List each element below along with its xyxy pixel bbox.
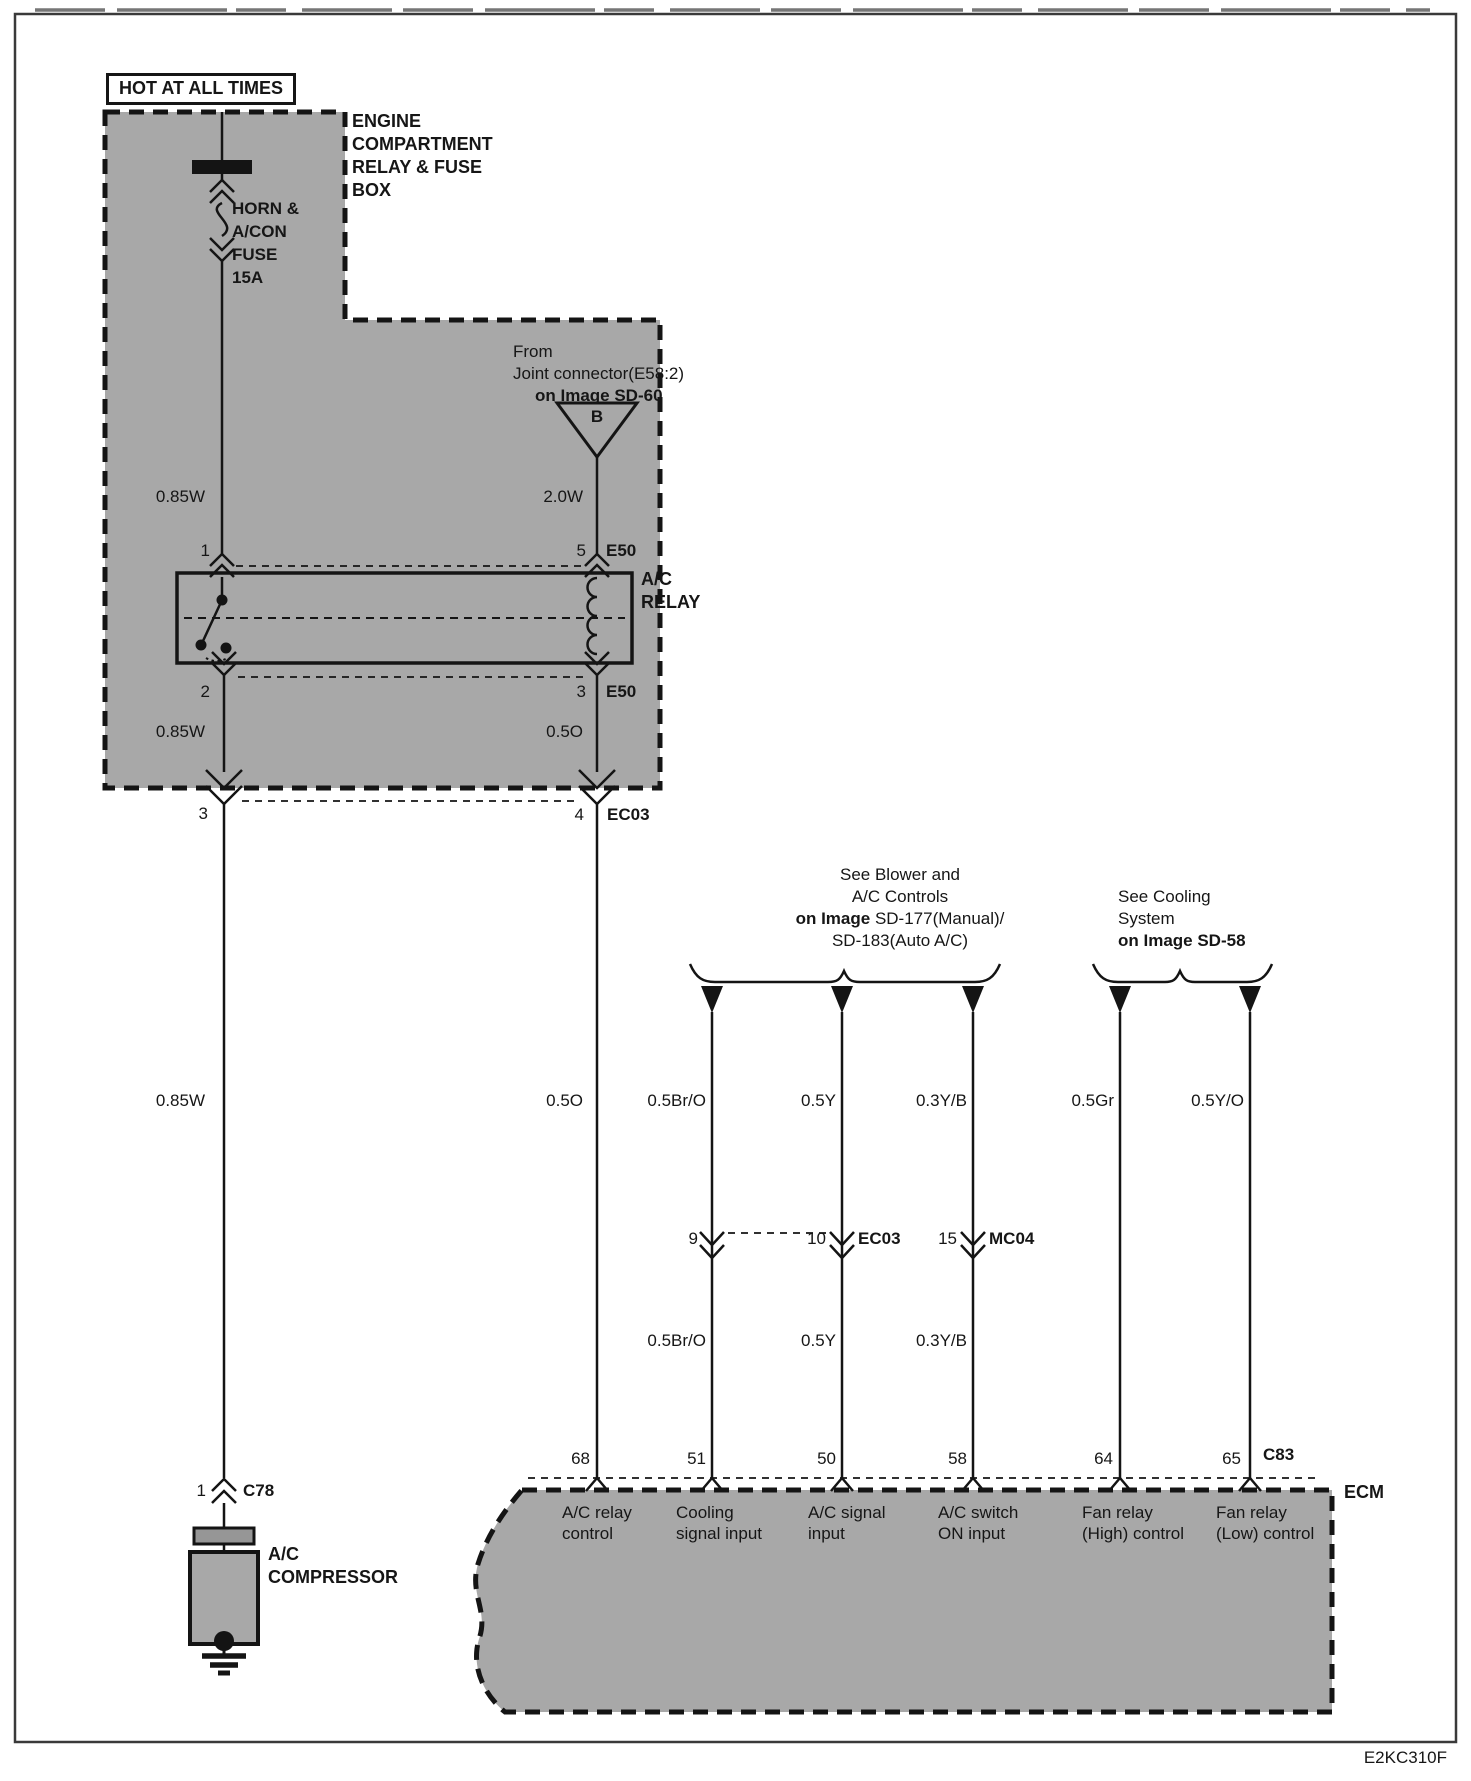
hot-at-all-times-box: HOT AT ALL TIMES: [106, 73, 296, 105]
compressor-connector-icon: [212, 1479, 236, 1503]
relay-pin-number: 1: [170, 540, 210, 561]
ecm-pin-number: 51: [666, 1448, 706, 1469]
ecm-fn-line: (Low) control: [1216, 1523, 1314, 1544]
blower-note-rest: SD-177(Manual)/: [870, 909, 1004, 928]
cooling-brace-icon: [1093, 964, 1272, 982]
ac-signal-arrow-icon: [831, 986, 853, 1013]
wire-label: 0.5O: [503, 721, 583, 742]
joint-triangle-tag: B: [589, 406, 605, 427]
relay-pin-number: 2: [170, 681, 210, 702]
blower-brace-icon: [690, 964, 1000, 982]
ecm-pin-number: 50: [796, 1448, 836, 1469]
relay-pin-number: 5: [546, 540, 586, 561]
relay-pin-number: 3: [546, 681, 586, 702]
ecm-pin-function: Cooling signal input: [676, 1502, 762, 1544]
connector-pin-number: 4: [544, 804, 584, 825]
fuse-box-name: ENGINE COMPARTMENT RELAY & FUSE BOX: [352, 110, 493, 202]
fuse-box-name-line: COMPARTMENT: [352, 133, 493, 156]
ecm-fn-line: (High) control: [1082, 1523, 1184, 1544]
wire-label: 2.0W: [503, 486, 583, 507]
relay-contact-dot: [221, 643, 232, 654]
cooling-note-line: See Cooling: [1118, 886, 1246, 908]
fan-low-arrow-icon: [1239, 986, 1261, 1013]
connector-name: MC04: [989, 1228, 1034, 1249]
fan-high-arrow-icon: [1109, 986, 1131, 1013]
wire-label: 0.85W: [125, 721, 205, 742]
blower-note-line: A/C Controls: [760, 886, 1040, 908]
ecm-fn-line: A/C switch: [938, 1502, 1018, 1523]
fuse-bus-bar: [192, 160, 252, 174]
relay-name-line: RELAY: [641, 591, 700, 614]
relay-name: A/C RELAY: [641, 568, 700, 614]
connector-name: C78: [243, 1480, 274, 1501]
diagram-code: E2KC310F: [1347, 1748, 1447, 1768]
wire-label: 0.5Y/O: [1164, 1090, 1244, 1111]
connector-pin-number: 15: [917, 1228, 957, 1249]
connector-pin-number: 3: [168, 803, 208, 824]
cooling-arrow-icon: [701, 986, 723, 1013]
connector-name: E50: [606, 540, 636, 561]
joint-note-line: Joint connector(E58:2): [513, 363, 684, 385]
wire-label: 0.5Gr: [1034, 1090, 1114, 1111]
connector-name: C83: [1263, 1444, 1294, 1465]
connector-name: EC03: [607, 804, 650, 825]
fuse-name: HORN & A/CON FUSE 15A: [232, 197, 299, 289]
ecm-fn-line: control: [562, 1523, 632, 1544]
hot-at-all-times-label: HOT AT ALL TIMES: [119, 78, 283, 98]
compressor-box: [190, 1552, 258, 1644]
connector-pin-number: 10: [786, 1228, 826, 1249]
ecm-pin-number: 64: [1073, 1448, 1113, 1469]
wire-label: 0.5Y: [756, 1330, 836, 1351]
relay-contact-dot: [196, 640, 207, 651]
wire-label: 0.85W: [125, 486, 205, 507]
fuse-box-name-line: BOX: [352, 179, 493, 202]
wire-label: 0.3Y/B: [887, 1330, 967, 1351]
wiring-diagram-page: HOT AT ALL TIMES ENGINE COMPARTMENT RELA…: [0, 0, 1471, 1781]
wire-label: 0.5O: [503, 1090, 583, 1111]
ecm-fn-line: input: [808, 1523, 885, 1544]
fuse-name-line: FUSE: [232, 243, 299, 266]
ecm-pin-function: Fan relay (Low) control: [1216, 1502, 1314, 1544]
ecm-fn-line: Fan relay: [1216, 1502, 1314, 1523]
fuse-box-name-line: ENGINE: [352, 110, 493, 133]
blower-note-bold: on Image: [796, 909, 871, 928]
wire-label: 0.3Y/B: [887, 1090, 967, 1111]
ecm-pin-function: A/C relay control: [562, 1502, 632, 1544]
compressor-name: A/C COMPRESSOR: [268, 1543, 398, 1589]
ecm-fn-line: A/C relay: [562, 1502, 632, 1523]
connector-pin-number: 9: [658, 1228, 698, 1249]
ac-switch-arrow-icon: [962, 986, 984, 1013]
cooling-note-line: on Image SD-58: [1118, 930, 1246, 952]
wire-label: 0.85W: [125, 1090, 205, 1111]
compressor-name-line: A/C: [268, 1543, 398, 1566]
wire-label: 0.5Br/O: [626, 1330, 706, 1351]
connector-name: E50: [606, 681, 636, 702]
compressor-name-line: COMPRESSOR: [268, 1566, 398, 1589]
clutch-coil-icon: [194, 1528, 254, 1544]
ecm-pin-function: A/C signal input: [808, 1502, 885, 1544]
joint-note-line: on Image SD-60: [535, 385, 684, 407]
ecm-fn-line: Cooling: [676, 1502, 762, 1523]
ecm-pin-number: 68: [550, 1448, 590, 1469]
ecm-fn-line: Fan relay: [1082, 1502, 1184, 1523]
ecm-pin-function: A/C switch ON input: [938, 1502, 1018, 1544]
ecm-pin-number: 58: [927, 1448, 967, 1469]
cooling-note: See Cooling System on Image SD-58: [1118, 886, 1246, 952]
blower-note-line: on Image SD-177(Manual)/: [760, 908, 1040, 930]
joint-connector-note: From Joint connector(E58:2) on Image SD-…: [513, 341, 684, 407]
blower-note: See Blower and A/C Controls on Image SD-…: [760, 864, 1040, 952]
ecm-fn-line: A/C signal: [808, 1502, 885, 1523]
blower-note-line: See Blower and: [760, 864, 1040, 886]
wire-label: 0.5Y: [756, 1090, 836, 1111]
fuse-name-line: HORN &: [232, 197, 299, 220]
blower-note-line: SD-183(Auto A/C): [760, 930, 1040, 952]
fuse-name-line: A/CON: [232, 220, 299, 243]
ecm-pin-number: 65: [1201, 1448, 1241, 1469]
ecm-pin-function: Fan relay (High) control: [1082, 1502, 1184, 1544]
ecm-fn-line: ON input: [938, 1523, 1018, 1544]
connector-name: EC03: [858, 1228, 901, 1249]
joint-note-line: From: [513, 341, 684, 363]
wire-label: 0.5Br/O: [626, 1090, 706, 1111]
ecm-label: ECM: [1344, 1482, 1384, 1503]
fuse-box-name-line: RELAY & FUSE: [352, 156, 493, 179]
connector-pin-number: 1: [166, 1480, 206, 1501]
relay-name-line: A/C: [641, 568, 700, 591]
ecm-fn-line: signal input: [676, 1523, 762, 1544]
cooling-note-line: System: [1118, 908, 1246, 930]
fuse-name-line: 15A: [232, 266, 299, 289]
relay-contact-dot: [217, 595, 228, 606]
